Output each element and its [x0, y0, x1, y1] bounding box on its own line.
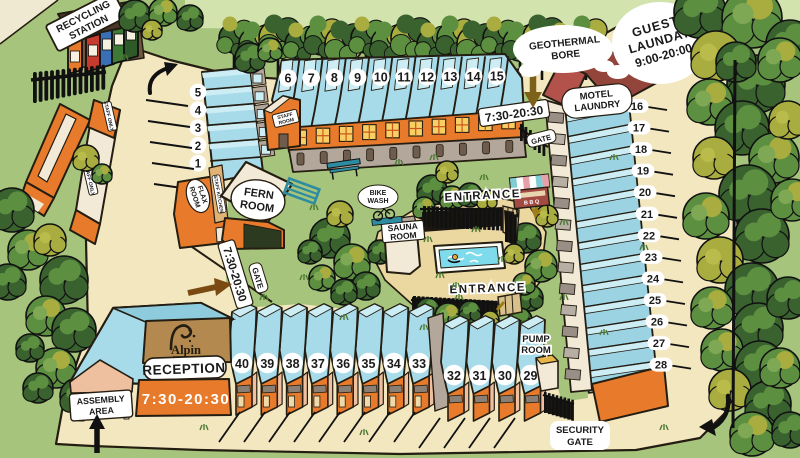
svg-text:3: 3 [195, 123, 201, 135]
svg-text:RECEPTION: RECEPTION [142, 360, 226, 378]
svg-text:10: 10 [374, 71, 388, 85]
svg-text:AREA: AREA [89, 405, 115, 417]
svg-text:30: 30 [498, 369, 512, 383]
svg-text:5: 5 [195, 88, 202, 100]
svg-text:38: 38 [286, 357, 300, 371]
svg-text:11: 11 [397, 71, 410, 85]
svg-text:ROOM: ROOM [521, 345, 551, 356]
svg-text:29: 29 [524, 369, 538, 383]
svg-text:2: 2 [195, 141, 201, 153]
svg-text:24: 24 [647, 273, 660, 285]
svg-text:1: 1 [195, 159, 202, 171]
svg-text:31: 31 [473, 369, 487, 383]
svg-text:BIKE: BIKE [370, 190, 387, 197]
svg-text:35: 35 [362, 357, 376, 371]
svg-text:37: 37 [311, 357, 325, 371]
svg-text:18: 18 [635, 144, 647, 156]
svg-text:GATE: GATE [567, 437, 593, 448]
svg-text:19: 19 [637, 166, 649, 178]
svg-text:23: 23 [645, 252, 657, 264]
svg-text:13: 13 [443, 70, 457, 84]
svg-text:4: 4 [195, 105, 202, 117]
svg-text:40: 40 [235, 357, 249, 371]
svg-text:12: 12 [420, 70, 434, 84]
svg-text:7: 7 [308, 71, 315, 85]
svg-text:17: 17 [633, 123, 645, 135]
svg-text:WASH: WASH [368, 198, 389, 205]
svg-text:34: 34 [387, 357, 401, 371]
svg-text:21: 21 [641, 209, 653, 221]
svg-text:25: 25 [649, 295, 661, 307]
svg-text:26: 26 [651, 317, 663, 329]
svg-text:39: 39 [260, 357, 274, 371]
svg-text:14: 14 [467, 70, 481, 84]
svg-text:27: 27 [653, 338, 665, 350]
svg-text:9: 9 [354, 71, 361, 85]
svg-text:32: 32 [447, 369, 461, 383]
svg-text:8: 8 [331, 71, 338, 85]
svg-text:22: 22 [643, 230, 655, 242]
svg-text:28: 28 [655, 360, 667, 372]
svg-text:36: 36 [336, 357, 350, 371]
svg-text:7:30-20:30: 7:30-20:30 [142, 391, 230, 408]
svg-text:16: 16 [631, 101, 643, 113]
svg-text:15: 15 [490, 70, 504, 84]
svg-text:33: 33 [412, 357, 426, 371]
svg-text:SECURITY: SECURITY [556, 425, 605, 436]
svg-text:PUMP: PUMP [522, 334, 550, 345]
svg-text:6: 6 [285, 72, 292, 86]
svg-text:20: 20 [639, 187, 651, 199]
svg-text:Alpin: Alpin [171, 343, 201, 357]
